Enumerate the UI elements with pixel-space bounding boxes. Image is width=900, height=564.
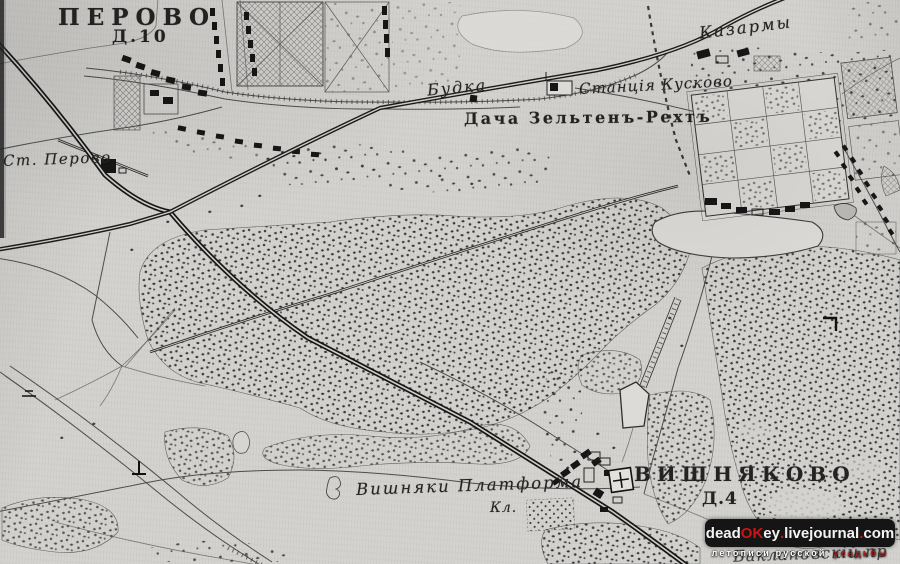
map-canvas: ПЕРОВО Д.10 Ст. Перово Будка Станція Кус… [0, 0, 900, 564]
watermark-text: dead [706, 525, 741, 542]
church-icon [609, 468, 634, 493]
watermark-badge: deadOKey.livejournal.com [705, 519, 895, 547]
label-vishnyakovo: ВИШНЯКОВО [634, 462, 856, 486]
label-dacha-zelten-recht: Дача Зельтенъ-Рехтъ [464, 107, 712, 128]
label-kl: Кл. [490, 500, 517, 516]
scan-edge [0, 0, 6, 238]
milestone-icon [132, 461, 146, 474]
platform-orchard [526, 498, 575, 531]
watermark-tagline: летописи русскойусадьбы [703, 548, 897, 558]
label-perovo-station: Ст. Перово [3, 148, 112, 170]
label-perovo-households: Д.10 [112, 27, 169, 47]
label-vishnyakovo-households: Д.4 [702, 489, 738, 509]
